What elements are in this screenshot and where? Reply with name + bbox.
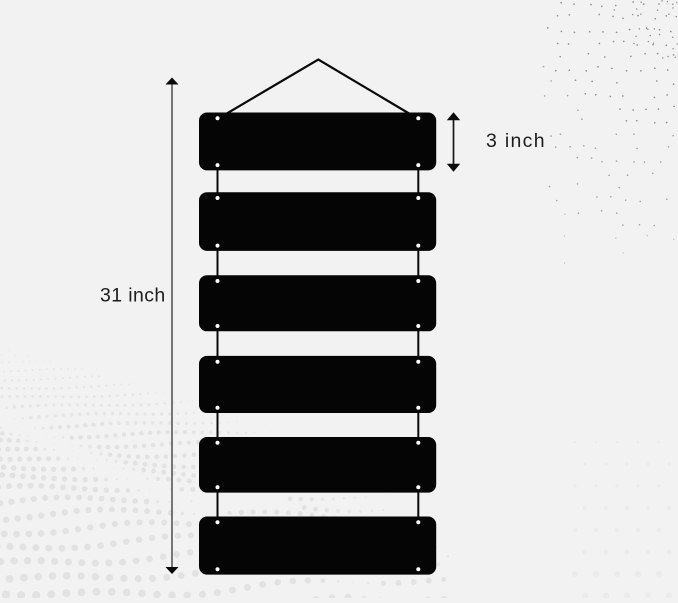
svg-text:3 inch: 3 inch [486,130,546,152]
svg-text:31 inch: 31 inch [100,285,166,307]
